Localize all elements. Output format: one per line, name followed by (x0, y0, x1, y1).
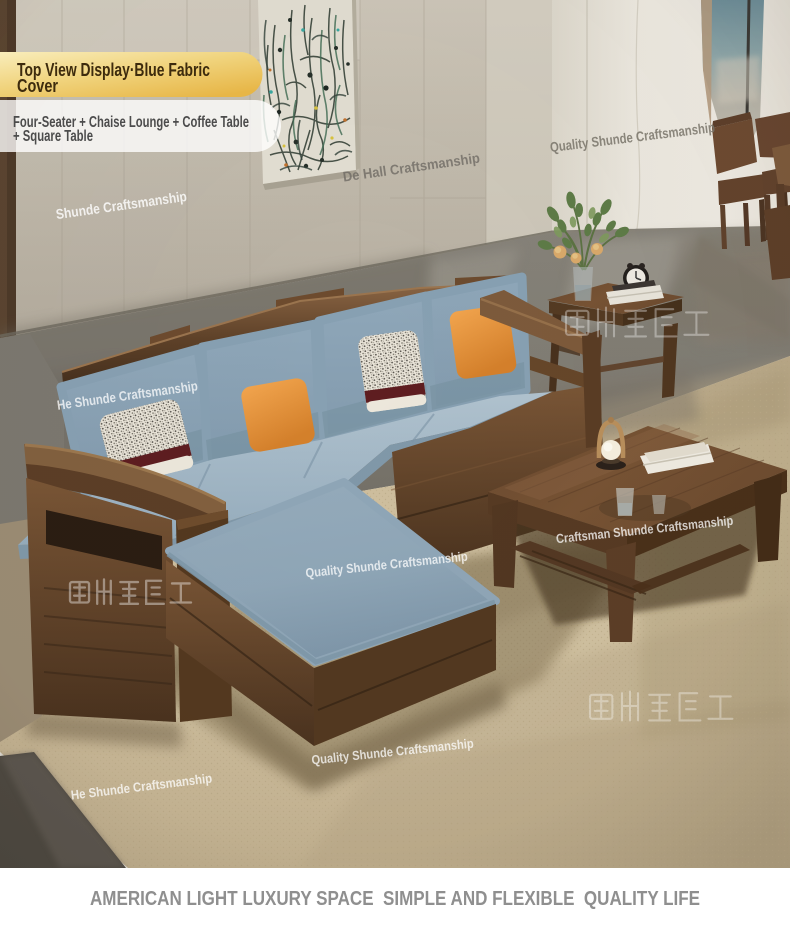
svg-text:AMERICAN LIGHT LUXURY SPACE S: AMERICAN LIGHT LUXURY SPACE SIMPLE AND F… (90, 888, 700, 910)
svg-text:+ Square Table: + Square Table (13, 128, 93, 145)
svg-text:Cover: Cover (17, 76, 58, 96)
